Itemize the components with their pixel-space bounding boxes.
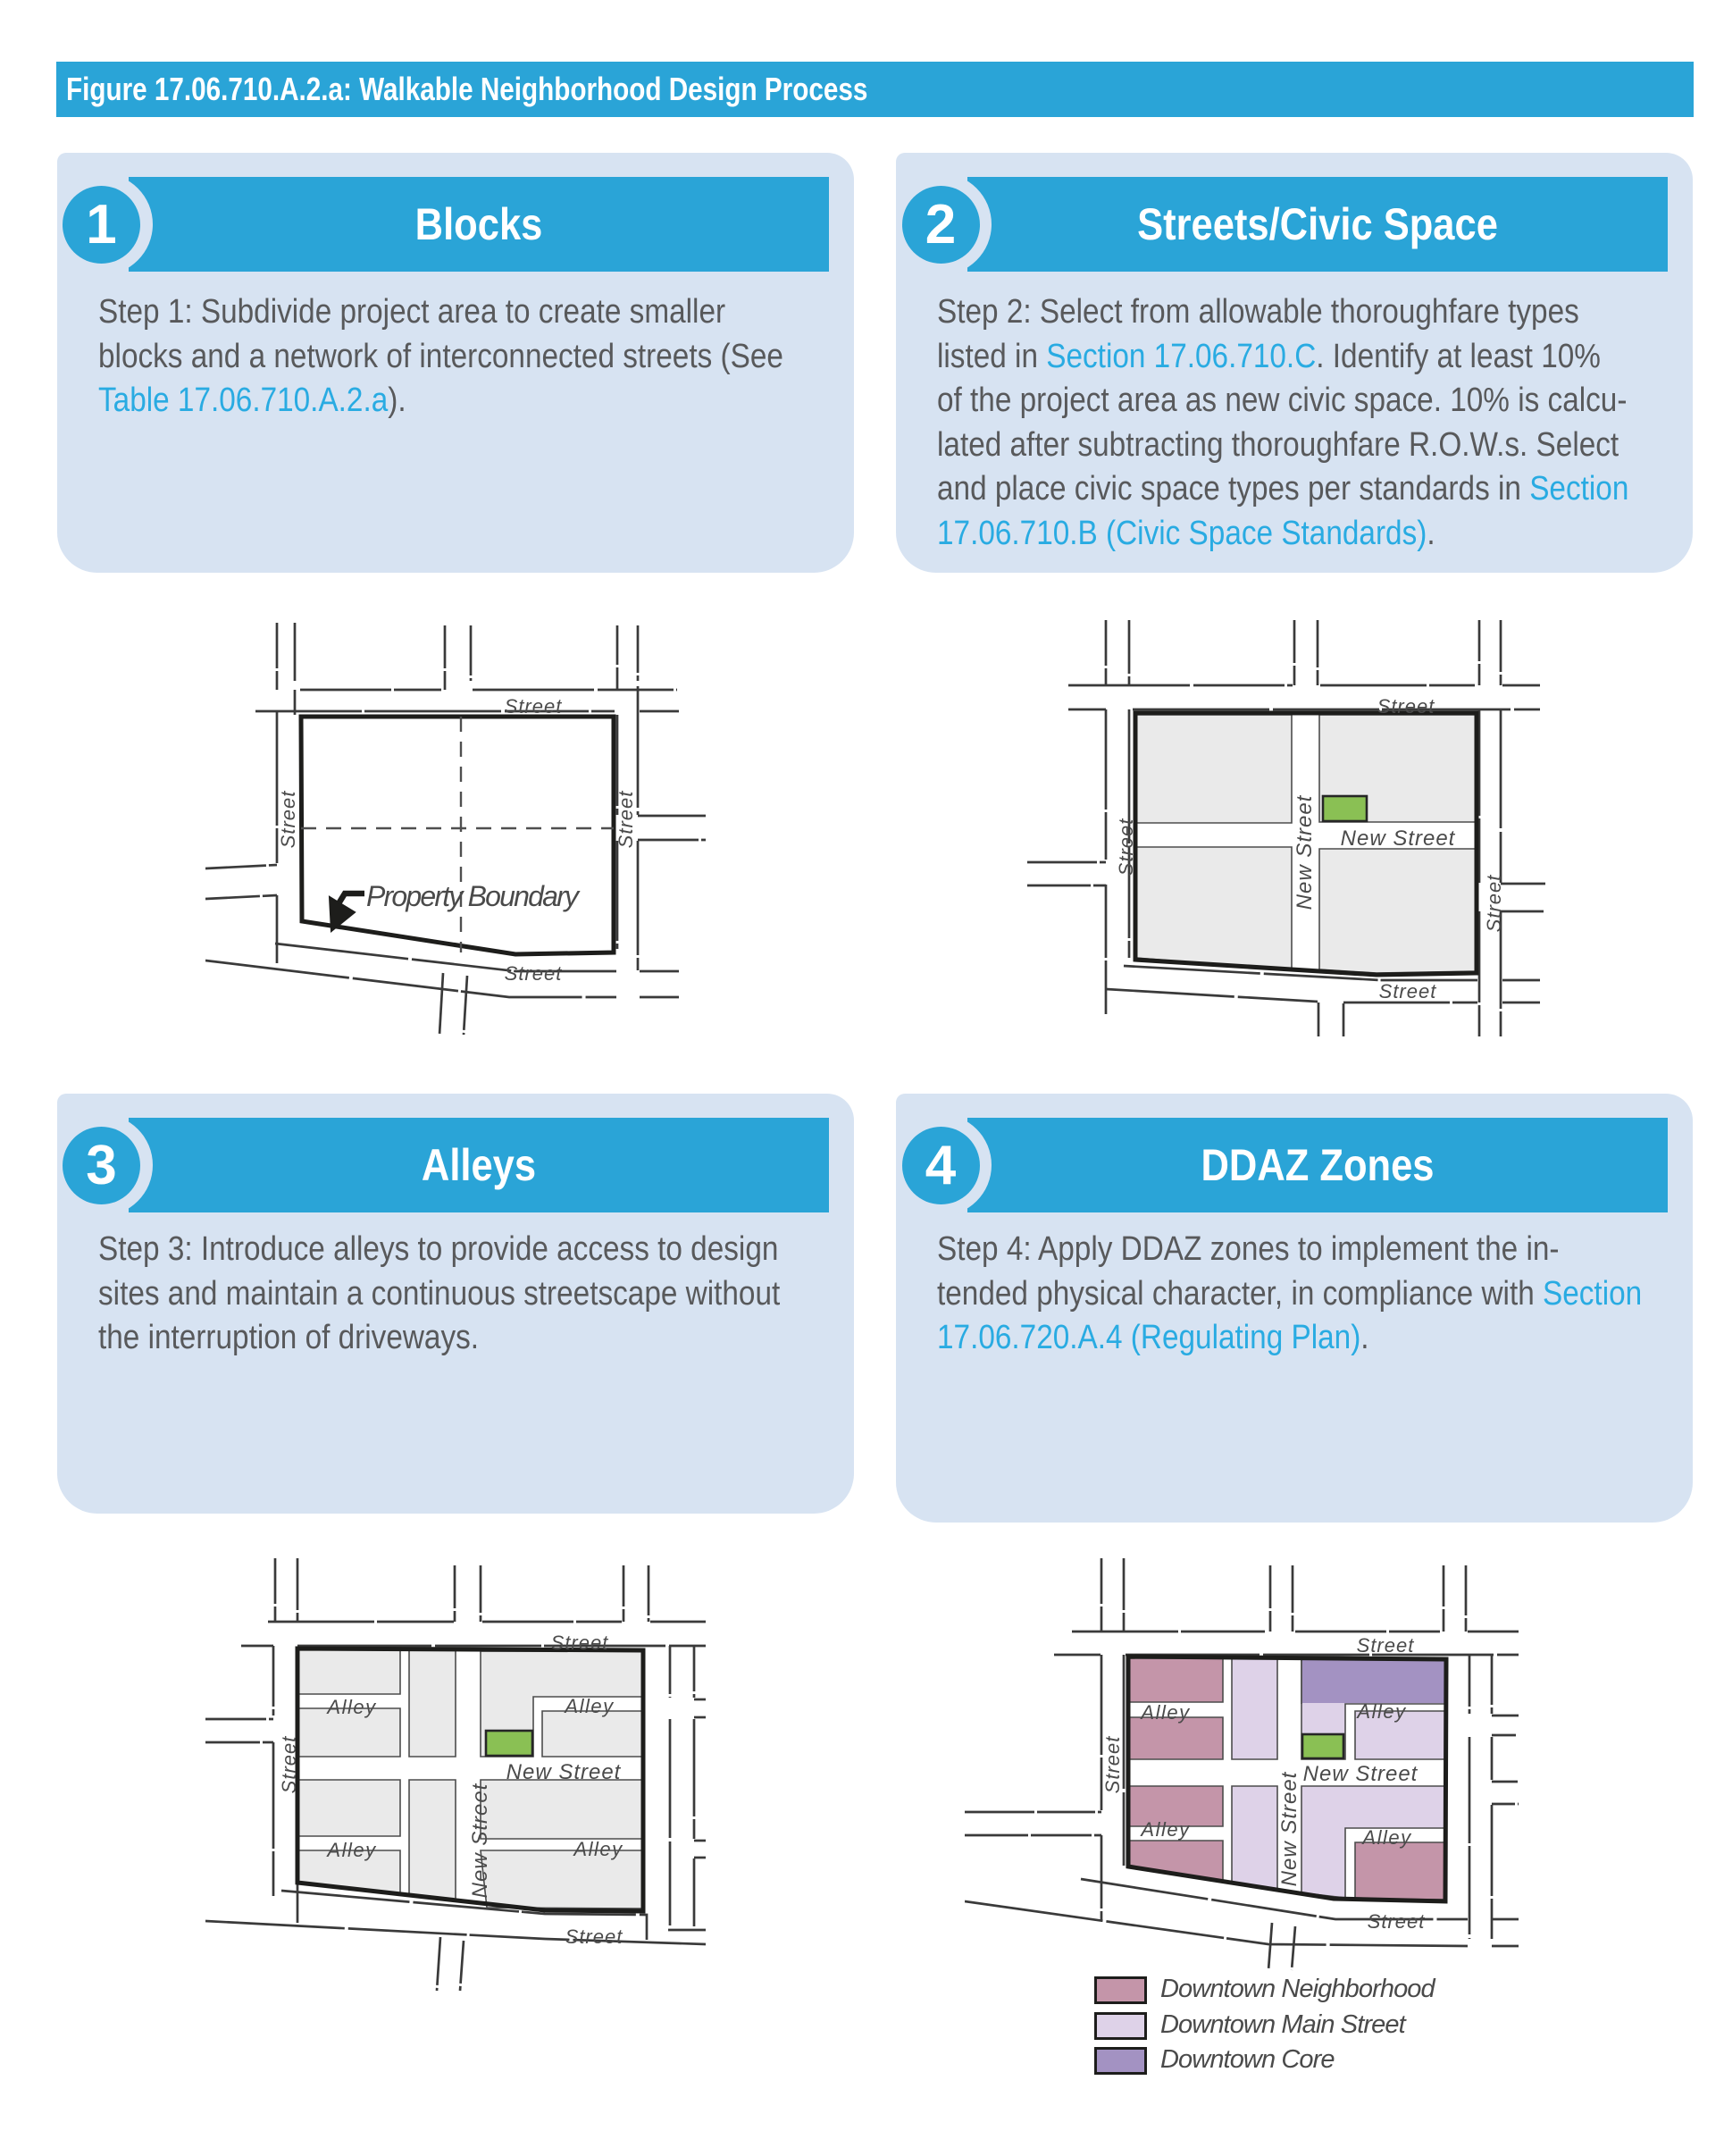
svg-text:Alley: Alley — [325, 1696, 377, 1718]
svg-text:Street: Street — [505, 695, 563, 717]
svg-text:Street: Street — [278, 1736, 300, 1794]
svg-text:New Street: New Street — [1341, 826, 1456, 851]
svg-text:New Street: New Street — [506, 1760, 622, 1784]
svg-text:Street: Street — [1379, 980, 1437, 1002]
svg-text:Street: Street — [551, 1632, 609, 1654]
svg-text:Alley: Alley — [572, 1838, 623, 1860]
svg-text:New Street: New Street — [1277, 1771, 1301, 1886]
svg-text:Alley: Alley — [325, 1839, 377, 1861]
svg-text:Street: Street — [277, 791, 299, 849]
svg-text:Alley: Alley — [1139, 1701, 1191, 1724]
svg-text:New Street: New Street — [1293, 794, 1317, 910]
svg-text:Alley: Alley — [1360, 1826, 1412, 1849]
svg-text:Property Boundary: Property Boundary — [366, 880, 581, 912]
svg-text:Alley: Alley — [563, 1695, 615, 1717]
svg-text:New Street: New Street — [1303, 1762, 1419, 1786]
svg-text:Street: Street — [1357, 1634, 1415, 1657]
svg-text:Street: Street — [615, 791, 637, 849]
svg-text:Alley: Alley — [1139, 1818, 1191, 1841]
svg-text:Street: Street — [1101, 1736, 1124, 1794]
svg-text:Street: Street — [1483, 875, 1505, 933]
svg-text:Street: Street — [505, 962, 563, 985]
svg-text:Alley: Alley — [1355, 1700, 1407, 1723]
svg-text:New Street: New Street — [468, 1783, 492, 1898]
svg-text:Street: Street — [1115, 818, 1137, 877]
svg-text:Street: Street — [565, 1925, 623, 1948]
svg-text:Street: Street — [1377, 695, 1435, 717]
svg-text:Street: Street — [1368, 1910, 1426, 1933]
